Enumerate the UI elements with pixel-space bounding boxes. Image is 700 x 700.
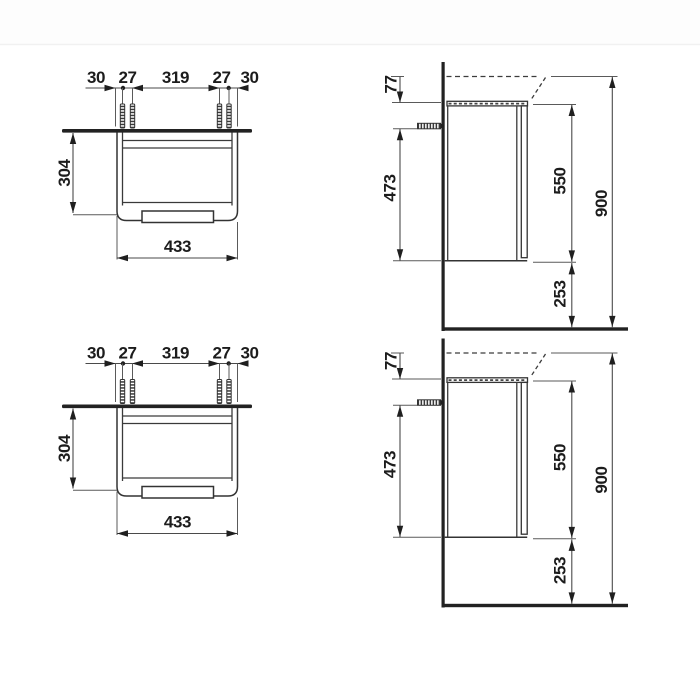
fixing-screw bbox=[418, 123, 445, 129]
cabinet-base-recess bbox=[142, 211, 214, 223]
arrowhead bbox=[569, 105, 575, 116]
technical-drawing: 30 27 319 27 30 bbox=[0, 0, 700, 700]
dim-label-edge-left: 30 bbox=[87, 68, 105, 87]
dim-label-pair-left: 27 bbox=[118, 68, 136, 87]
cabinet-front bbox=[117, 133, 238, 223]
front-elevation-view-bottom bbox=[55, 344, 259, 537]
screw-body bbox=[418, 123, 441, 129]
side-elevation-view: 77 473 550 253 900 bbox=[381, 62, 629, 331]
dim-label-height: 304 bbox=[55, 158, 74, 186]
dowel bbox=[120, 104, 124, 128]
dimension-cabinet-height: 550 bbox=[551, 105, 576, 262]
cabinet-outline bbox=[117, 133, 238, 221]
basin-dashed-front bbox=[531, 78, 546, 101]
dimension-height: 304 bbox=[55, 133, 117, 215]
dimension-chain-top: 30 27 319 27 30 bbox=[86, 68, 259, 127]
dim-label-center: 319 bbox=[162, 68, 189, 87]
dimension-fixing-height: 473 bbox=[381, 129, 404, 261]
dowel bbox=[130, 104, 134, 128]
front-elevation-view: 30 27 319 27 30 bbox=[55, 68, 259, 261]
arrowhead bbox=[609, 316, 615, 327]
side-elevation-view-bottom bbox=[381, 339, 629, 608]
wall-line bbox=[442, 62, 445, 331]
arrowhead bbox=[569, 263, 575, 274]
dim-label-basin-offset: 77 bbox=[382, 75, 401, 93]
dimension-overall-height: 900 bbox=[592, 77, 616, 328]
dim-label-floor-clearance: 253 bbox=[551, 280, 570, 307]
dowel bbox=[217, 104, 221, 128]
washbasin-top bbox=[62, 129, 252, 133]
fixing-dowels bbox=[120, 104, 231, 128]
cabinet-side bbox=[445, 101, 528, 260]
arrowhead bbox=[569, 250, 575, 261]
arrowhead bbox=[397, 129, 403, 140]
dim-label-overall-height: 900 bbox=[592, 190, 611, 217]
arrowhead bbox=[569, 316, 575, 327]
drawing-page: 30 27 319 27 30 bbox=[0, 0, 700, 700]
dimension-floor-clearance: 253 bbox=[551, 263, 576, 327]
dim-label-pair-right: 27 bbox=[212, 68, 230, 87]
arrowhead bbox=[609, 77, 615, 88]
arrowhead bbox=[70, 133, 76, 144]
arrowhead bbox=[397, 249, 403, 260]
dim-label-fixing-height: 473 bbox=[381, 174, 400, 201]
arrowhead bbox=[105, 85, 116, 91]
arrowhead bbox=[117, 255, 128, 261]
floor-line bbox=[442, 327, 629, 330]
dim-label-cabinet-height: 550 bbox=[551, 167, 570, 194]
page-top-band bbox=[0, 0, 700, 44]
arrowhead bbox=[227, 255, 238, 261]
dim-label-width: 433 bbox=[164, 237, 191, 256]
dowel bbox=[227, 104, 231, 128]
dim-label-edge-right: 30 bbox=[240, 68, 258, 87]
dimension-basin-offset: 77 bbox=[382, 75, 404, 102]
door-panel bbox=[521, 106, 527, 258]
arrowhead bbox=[70, 202, 76, 213]
